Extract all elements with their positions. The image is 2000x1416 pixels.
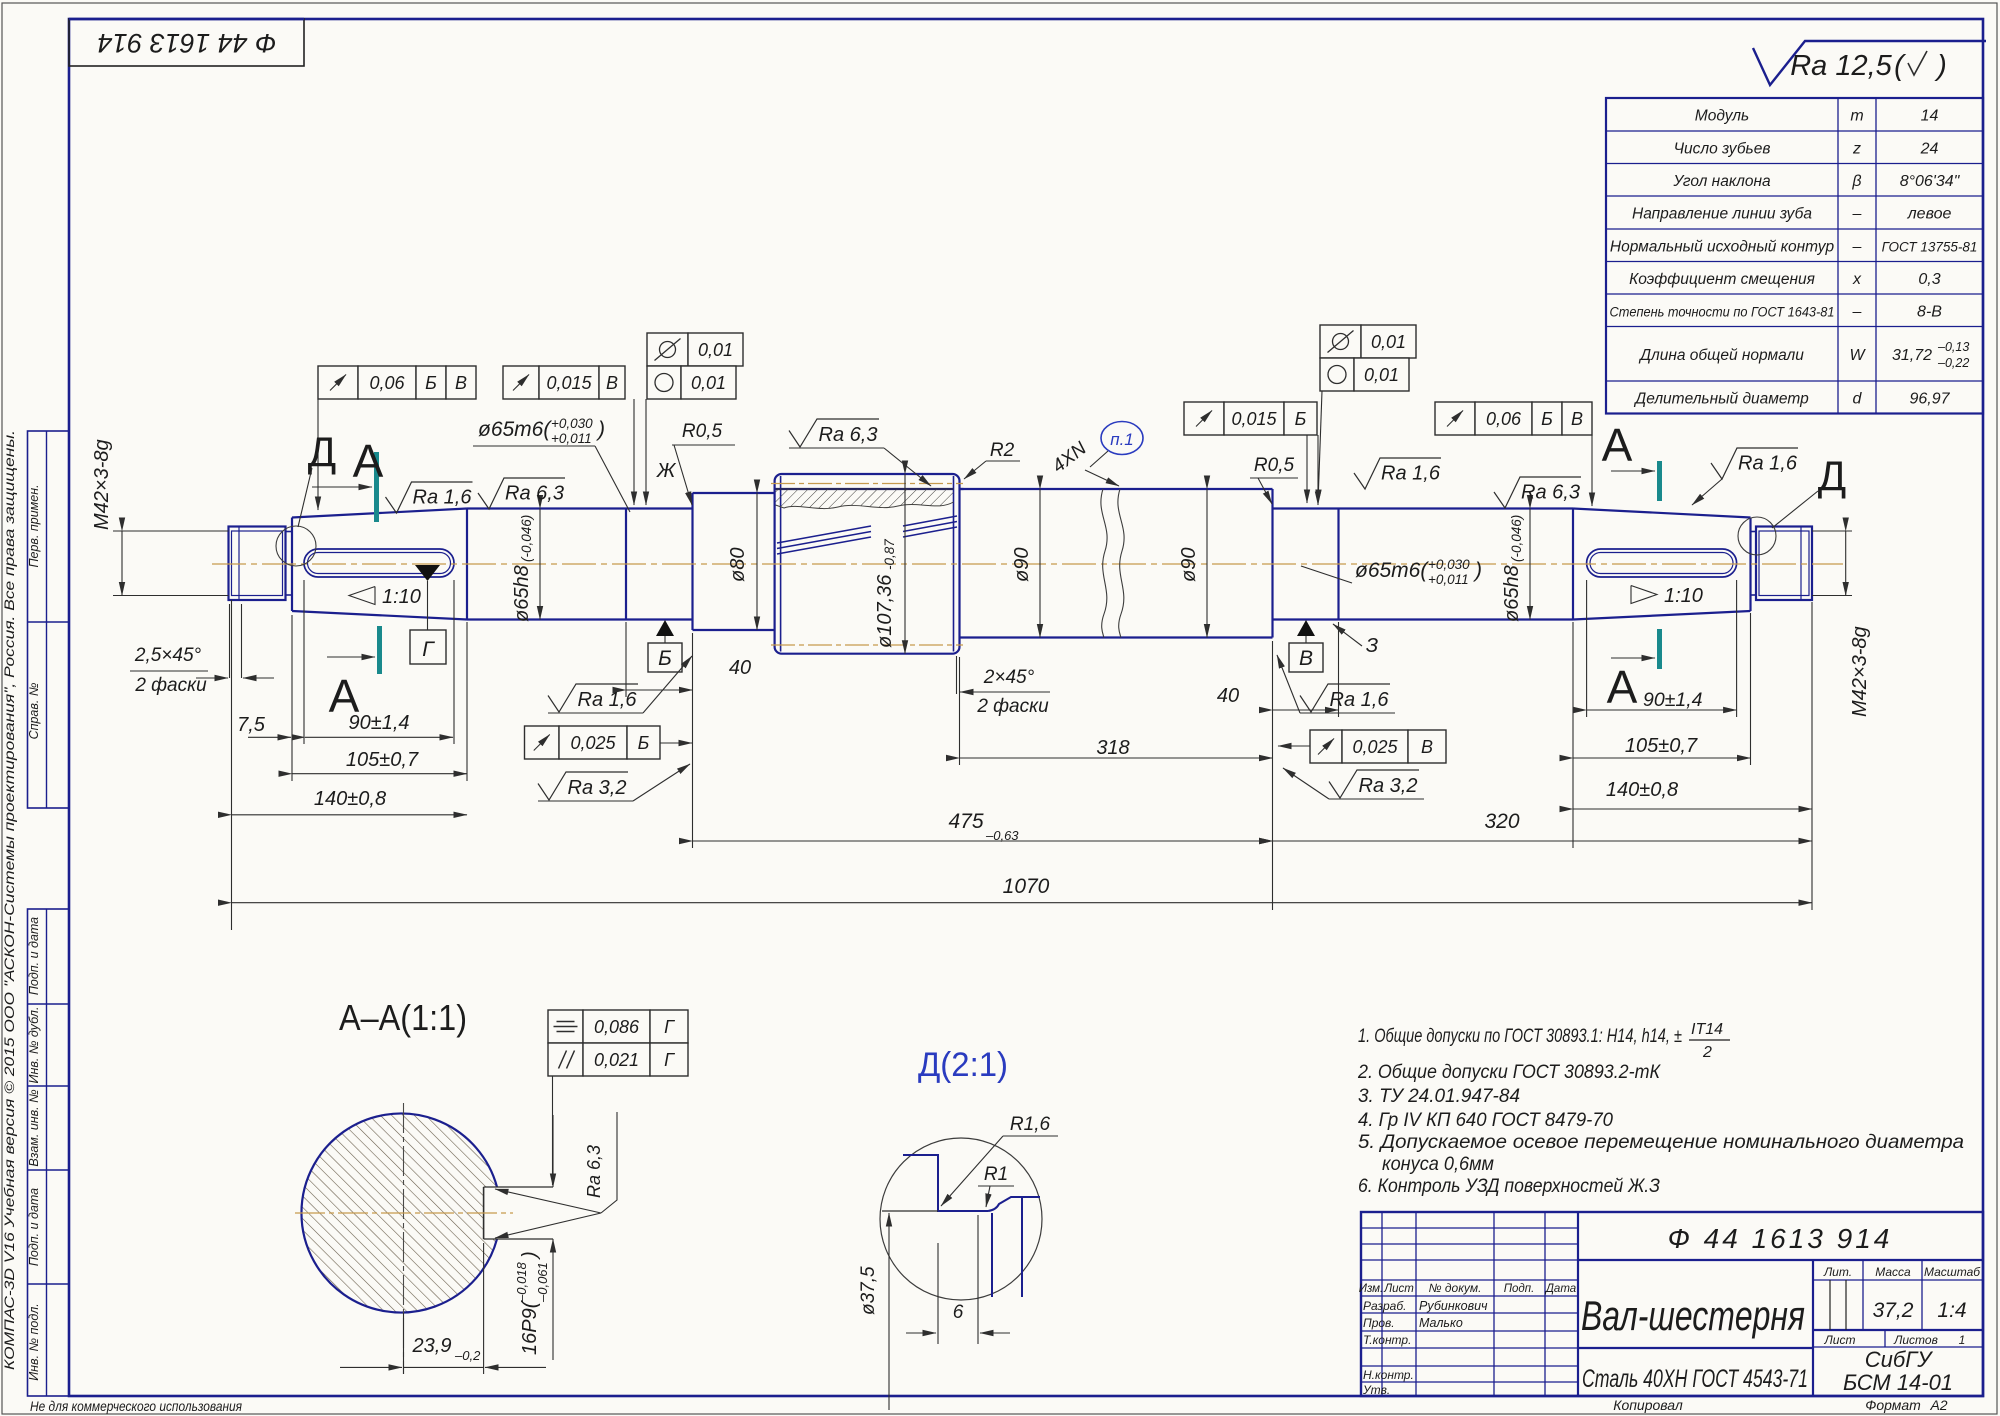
svg-text:0,021: 0,021 <box>594 1050 639 1070</box>
svg-text:Инв. № подл.: Инв. № подл. <box>27 1303 41 1381</box>
svg-text:16Р9(: 16Р9( <box>519 1299 541 1355</box>
svg-text:8°06'34": 8°06'34" <box>1900 173 1961 190</box>
svg-text:Лист: Лист <box>1824 1333 1856 1347</box>
svg-text:Изм.: Изм. <box>1359 1283 1384 1295</box>
svg-text:1:10: 1:10 <box>1664 585 1703 607</box>
svg-text:В: В <box>455 373 467 393</box>
svg-text:0,086: 0,086 <box>594 1017 640 1037</box>
svg-text:Г: Г <box>664 1017 675 1037</box>
svg-text:Ra 6,3: Ra 6,3 <box>584 1145 604 1198</box>
svg-text:6. Контроль УЗД поверхностей Ж: 6. Контроль УЗД поверхностей Ж.З <box>1358 1176 1660 1197</box>
svg-text:Б: Б <box>658 647 672 670</box>
svg-text:Копировал: Копировал <box>1613 1397 1683 1413</box>
svg-text:R2: R2 <box>990 440 1015 461</box>
svg-text:левое: левое <box>1907 206 1952 223</box>
svg-text:А: А <box>1607 661 1638 713</box>
svg-text:Масса: Масса <box>1875 1265 1911 1279</box>
svg-text:Ra 6,3: Ra 6,3 <box>505 483 564 505</box>
svg-text:А: А <box>353 435 384 487</box>
svg-text:105±0,7: 105±0,7 <box>1625 735 1698 757</box>
svg-text:–: – <box>1852 238 1862 255</box>
svg-text:96,97: 96,97 <box>1909 390 1950 407</box>
svg-text:R1,6: R1,6 <box>1010 1114 1051 1135</box>
svg-text:(-0,046): (-0,046) <box>1509 515 1524 562</box>
svg-text:Г: Г <box>664 1050 675 1070</box>
svg-text:Малько: Малько <box>1419 1316 1463 1330</box>
svg-text:m: m <box>1850 108 1863 125</box>
svg-text:R1: R1 <box>984 1164 1008 1185</box>
svg-text:Угол наклона: Угол наклона <box>1672 173 1771 190</box>
svg-text:7,5: 7,5 <box>237 714 266 736</box>
svg-text:Длина общей нормали: Длина общей нормали <box>1638 347 1804 364</box>
svg-text:Подп. и дата: Подп. и дата <box>27 1188 41 1266</box>
svg-text:Б: Б <box>638 733 650 753</box>
svg-text:1. Общие допуски по ГОСТ 30893: 1. Общие допуски по ГОСТ 30893.1: Н14, h… <box>1358 1026 1682 1047</box>
svg-text:Лист: Лист <box>1383 1283 1414 1295</box>
svg-text:п.1: п.1 <box>1110 430 1134 449</box>
svg-text:Направление линии зуба: Направление линии зуба <box>1632 206 1812 223</box>
svg-text:140±0,8: 140±0,8 <box>1606 779 1678 801</box>
svg-text:1:4: 1:4 <box>1937 1299 1966 1322</box>
svg-text:(-0,046): (-0,046) <box>519 515 534 562</box>
svg-text:Б: Б <box>1295 409 1307 429</box>
svg-text:ø65m6(: ø65m6( <box>1355 559 1429 582</box>
svg-text:+0,030: +0,030 <box>551 416 593 431</box>
svg-text:ø107,36: ø107,36 <box>874 574 896 648</box>
svg-text:1:10: 1:10 <box>382 586 421 608</box>
svg-text:Ra 1,6: Ra 1,6 <box>1738 453 1798 475</box>
svg-text:Утв.: Утв. <box>1362 1383 1390 1397</box>
svg-text:14: 14 <box>1921 108 1939 125</box>
svg-text:Ra 1,6: Ra 1,6 <box>1381 463 1441 485</box>
svg-text:2×45°: 2×45° <box>983 667 1035 688</box>
svg-text:А2: А2 <box>1929 1397 1947 1413</box>
svg-text:0,015: 0,015 <box>1231 409 1277 429</box>
svg-text:1070: 1070 <box>1003 875 1050 898</box>
svg-text:ø80: ø80 <box>727 548 749 582</box>
svg-text:№ докум.: № докум. <box>1429 1281 1482 1295</box>
svg-text:40: 40 <box>729 657 751 679</box>
svg-text:Ra 1,6: Ra 1,6 <box>413 487 473 509</box>
svg-text:Т.контр.: Т.контр. <box>1363 1333 1411 1347</box>
svg-text:ø65h8: ø65h8 <box>1501 565 1523 622</box>
svg-text:Листов: Листов <box>1893 1333 1938 1347</box>
svg-text:Д(2:1): Д(2:1) <box>918 1046 1008 1084</box>
svg-text:31,72: 31,72 <box>1892 347 1932 364</box>
svg-text:–: – <box>1852 303 1862 320</box>
svg-text:ø65m6(: ø65m6( <box>478 418 552 441</box>
svg-text:Ф 44 1613 914: Ф 44 1613 914 <box>1668 1223 1893 1254</box>
svg-text:–0,2: –0,2 <box>454 1348 481 1363</box>
svg-text:z: z <box>1852 140 1861 157</box>
svg-text:+0,011: +0,011 <box>551 431 592 446</box>
svg-text:Вал-шестерня: Вал-шестерня <box>1581 1292 1805 1339</box>
svg-text:В: В <box>1421 737 1433 757</box>
svg-text:Ra 3,2: Ra 3,2 <box>1359 775 1418 797</box>
svg-text:Н.контр.: Н.контр. <box>1363 1368 1414 1382</box>
svg-text:Ж: Ж <box>656 460 677 482</box>
svg-text:БСМ 14-01: БСМ 14-01 <box>1843 1370 1953 1395</box>
svg-text:Рубинкович: Рубинкович <box>1419 1299 1488 1313</box>
svg-text:Ra 6,3: Ra 6,3 <box>819 424 878 446</box>
svg-text:–0,018: –0,018 <box>514 1261 529 1303</box>
svg-text:0,06: 0,06 <box>369 373 405 393</box>
svg-text:140±0,8: 140±0,8 <box>314 788 386 810</box>
svg-text:R0,5: R0,5 <box>682 421 723 442</box>
svg-text:2: 2 <box>1702 1044 1712 1061</box>
svg-text:З: З <box>1366 635 1378 657</box>
svg-text:Ra 6,3: Ra 6,3 <box>1521 482 1580 504</box>
svg-text:6: 6 <box>953 1302 964 1323</box>
svg-text:КОМПАС-3D V16 Учебная версия ©: КОМПАС-3D V16 Учебная версия © 2015 ООО … <box>1 430 17 1370</box>
svg-text:–: – <box>1852 206 1862 223</box>
svg-text:ø90: ø90 <box>1178 548 1200 582</box>
svg-text:–0,22: –0,22 <box>1937 356 1969 370</box>
svg-text:Д: Д <box>308 428 336 475</box>
svg-text:ø65h8: ø65h8 <box>511 565 533 622</box>
svg-text:ø90: ø90 <box>1011 548 1033 582</box>
svg-text:Степень точности по ГОСТ 1643-: Степень точности по ГОСТ 1643-81 <box>1610 304 1835 319</box>
svg-text:ø37,5: ø37,5 <box>858 1266 879 1315</box>
svg-text:90±1,4: 90±1,4 <box>1643 689 1703 711</box>
svg-text:Число зубьев: Число зубьев <box>1674 140 1771 157</box>
svg-text:М42×3-8g: М42×3-8g <box>1849 626 1871 717</box>
svg-text:R0,5: R0,5 <box>1254 455 1295 476</box>
svg-text:Инв. № дубл.: Инв. № дубл. <box>27 1007 41 1084</box>
svg-text:Ra 1,6: Ra 1,6 <box>578 689 638 711</box>
svg-text:Подп. и дата: Подп. и дата <box>27 917 41 995</box>
svg-text:Не для коммерческого использов: Не для коммерческого использования <box>30 1398 242 1414</box>
svg-text:Г: Г <box>422 638 435 661</box>
svg-text:Ra 12,5: Ra 12,5 <box>1790 50 1892 82</box>
svg-text:Ra 3,2: Ra 3,2 <box>568 777 627 799</box>
svg-text:А: А <box>1602 419 1633 471</box>
svg-text:Формат: Формат <box>1865 1397 1921 1413</box>
svg-text:90±1,4: 90±1,4 <box>348 712 409 734</box>
svg-text:x: x <box>1852 271 1862 288</box>
svg-text:конуса 0,6мм: конуса 0,6мм <box>1382 1154 1494 1175</box>
svg-text:0,01: 0,01 <box>1364 365 1399 385</box>
svg-text:Делительный диаметр: Делительный диаметр <box>1633 390 1809 407</box>
svg-text:0,025: 0,025 <box>1352 737 1398 757</box>
svg-text:Перв. примен.: Перв. примен. <box>27 484 41 567</box>
svg-text:8-В: 8-В <box>1917 303 1942 320</box>
svg-text:Сталь 40ХН ГОСТ 4543-71: Сталь 40ХН ГОСТ 4543-71 <box>1582 1365 1808 1393</box>
svg-text:Б: Б <box>425 373 437 393</box>
svg-text:475: 475 <box>948 810 983 833</box>
svg-text:3. ТУ 24.01.947-84: 3. ТУ 24.01.947-84 <box>1358 1086 1520 1107</box>
svg-text:0,01: 0,01 <box>698 340 733 360</box>
svg-text:2. Общие допуски ГОСТ 30893.2-: 2. Общие допуски ГОСТ 30893.2-mК <box>1357 1062 1662 1083</box>
svg-text:-0,87: -0,87 <box>882 539 897 570</box>
svg-text:–0,061: –0,061 <box>535 1262 550 1303</box>
svg-text:W: W <box>1849 347 1866 364</box>
svg-text:d: d <box>1853 390 1863 407</box>
svg-text:Д: Д <box>1818 452 1846 499</box>
svg-text:Нормальный исходный контур: Нормальный исходный контур <box>1610 238 1835 255</box>
svg-text:Лит.: Лит. <box>1823 1265 1852 1279</box>
svg-text:0,01: 0,01 <box>1371 332 1406 352</box>
svg-text:А–А(1:1): А–А(1:1) <box>339 997 467 1038</box>
svg-text:Подп.: Подп. <box>1504 1283 1535 1295</box>
svg-text:23,9: 23,9 <box>412 1335 452 1357</box>
svg-text:+0,011: +0,011 <box>1428 572 1469 587</box>
svg-text:Масштаб: Масштаб <box>1924 1265 1981 1279</box>
svg-text:2,5×45°: 2,5×45° <box>134 645 202 666</box>
svg-text:320: 320 <box>1484 810 1519 833</box>
svg-text:40: 40 <box>1217 685 1239 707</box>
svg-text:Справ. №: Справ. № <box>27 682 41 739</box>
svg-text:1: 1 <box>1959 1333 1966 1347</box>
svg-text:Б: Б <box>1541 409 1553 429</box>
svg-text:СибГУ: СибГУ <box>1865 1347 1933 1372</box>
svg-text:318: 318 <box>1096 737 1129 759</box>
svg-text:Модуль: Модуль <box>1695 108 1749 125</box>
svg-text:В: В <box>606 373 618 393</box>
svg-text:В: В <box>1571 409 1583 429</box>
svg-text:24: 24 <box>1920 140 1939 157</box>
svg-text:Пров.: Пров. <box>1363 1316 1395 1330</box>
svg-text:0,025: 0,025 <box>570 733 616 753</box>
svg-text:В: В <box>1299 647 1313 670</box>
svg-text:0,3: 0,3 <box>1918 271 1940 288</box>
svg-text:Ra 1,6: Ra 1,6 <box>1330 689 1390 711</box>
svg-text:–0,13: –0,13 <box>1937 340 1969 354</box>
svg-text:+0,030: +0,030 <box>1428 557 1470 572</box>
svg-text:2 фаски: 2 фаски <box>976 696 1049 717</box>
svg-text:Коэффициент смещения: Коэффициент смещения <box>1629 271 1815 288</box>
svg-text:β: β <box>1851 173 1861 190</box>
svg-text:IT14: IT14 <box>1691 1021 1723 1038</box>
svg-text:ГОСТ 13755-81: ГОСТ 13755-81 <box>1882 239 1978 254</box>
svg-text:М42×3-8g: М42×3-8g <box>91 439 113 530</box>
svg-text:Разраб.: Разраб. <box>1363 1299 1406 1313</box>
svg-text:37,2: 37,2 <box>1873 1299 1914 1322</box>
svg-text:Взам. инв. №: Взам. инв. № <box>27 1089 41 1167</box>
svg-text:0,06: 0,06 <box>1486 409 1522 429</box>
svg-text:0,01: 0,01 <box>691 373 726 393</box>
svg-text:5. Допускаемое осевое перемеще: 5. Допускаемое осевое перемещение номина… <box>1358 1132 1964 1153</box>
svg-text:Дата: Дата <box>1544 1283 1576 1295</box>
svg-text:4. Гр IV КП 640 ГОСТ 8479-70: 4. Гр IV КП 640 ГОСТ 8479-70 <box>1358 1110 1613 1131</box>
svg-text:0,015: 0,015 <box>546 373 592 393</box>
svg-text:Ф 44 1613 914: Ф 44 1613 914 <box>97 28 276 58</box>
svg-text:): ) <box>519 1251 541 1260</box>
svg-text:105±0,7: 105±0,7 <box>346 749 419 771</box>
